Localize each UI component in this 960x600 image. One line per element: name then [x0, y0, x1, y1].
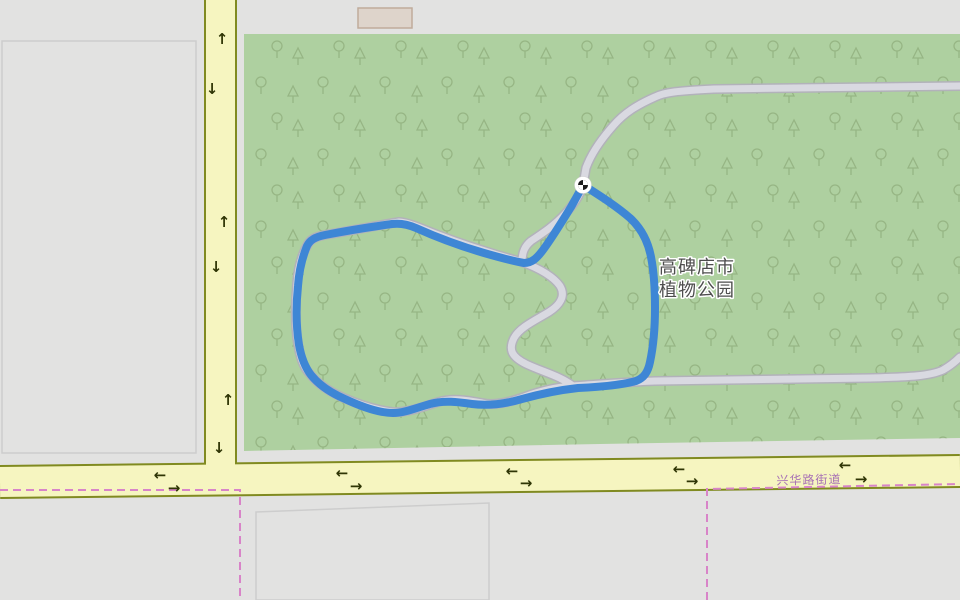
route-marker[interactable]: [575, 177, 592, 194]
street-name-label: 兴华路街道: [776, 471, 841, 487]
oneway-arrow-down-icon: ↓: [213, 439, 226, 457]
oneway-arrow-right-icon: →: [520, 474, 533, 492]
oneway-arrow-left-icon: ←: [839, 456, 852, 474]
oneway-arrow-down-icon: ↓: [210, 258, 223, 276]
oneway-arrow-up-icon: ↑: [222, 391, 235, 409]
oneway-arrow-right-icon: →: [855, 470, 868, 488]
park-name-line2: 植物公园: [659, 280, 735, 301]
checkered-flag-icon: [578, 180, 588, 190]
park-name-line1: 高碑店市: [659, 257, 735, 278]
map-viewport[interactable]: ↑ ↓ ↑ ↓ ↑ ↓ ← ← ← ← ← → → → → → 高碑店市 植物公…: [0, 0, 960, 600]
building-footprint: [358, 8, 412, 28]
oneway-arrow-left-icon: ←: [154, 466, 167, 484]
oneway-arrow-right-icon: →: [168, 479, 181, 497]
oneway-arrow-left-icon: ←: [336, 464, 349, 482]
oneway-arrow-right-icon: →: [350, 477, 363, 495]
oneway-arrow-left-icon: ←: [506, 462, 519, 480]
oneway-arrow-up-icon: ↑: [216, 30, 229, 48]
oneway-arrow-up-icon: ↑: [218, 213, 231, 231]
map-canvas[interactable]: ↑ ↓ ↑ ↓ ↑ ↓ ← ← ← ← ← → → → → → 高碑店市 植物公…: [0, 0, 960, 600]
oneway-arrow-down-icon: ↓: [206, 80, 219, 98]
oneway-arrow-left-icon: ←: [673, 460, 686, 478]
oneway-arrow-right-icon: →: [686, 472, 699, 490]
